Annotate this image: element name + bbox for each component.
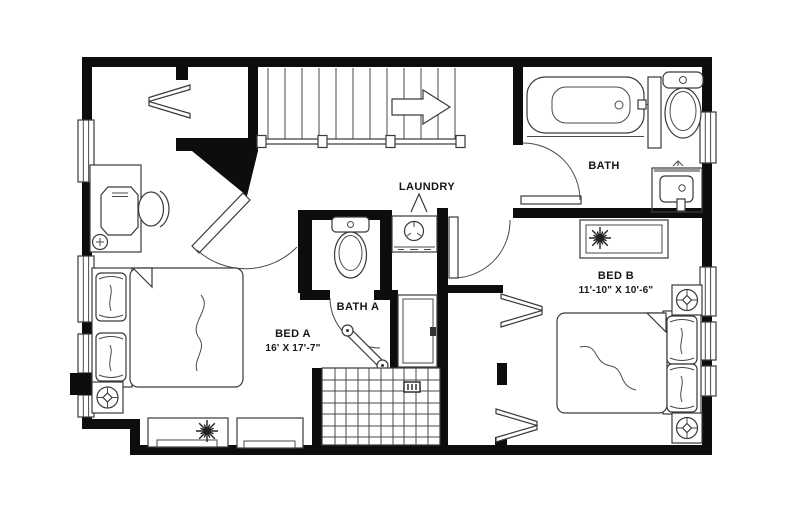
towel-bar	[673, 161, 683, 166]
plant-symbol	[589, 227, 611, 249]
lamp-symbol	[677, 290, 698, 311]
window-right-3	[700, 322, 716, 360]
lamp-symbol	[97, 387, 118, 408]
bed-b-dimensions: 11'-10" X 10'-6"	[579, 285, 654, 296]
stair-railing	[257, 136, 465, 148]
washer-dryer	[392, 216, 437, 252]
floor-plan: BED A 16' X 17'-7" LAUNDRY	[0, 0, 800, 518]
cabinet-handle	[430, 327, 436, 336]
nightstand-bed-b-top	[672, 285, 702, 315]
staircase	[257, 68, 465, 148]
bath-a-label: BATH A	[337, 301, 380, 313]
shower-drain	[404, 382, 420, 392]
bed-a-dimensions: 16' X 17'-7"	[265, 343, 320, 354]
toilet-bath	[663, 72, 703, 138]
wall-pier	[70, 373, 93, 395]
plant-symbol	[196, 420, 218, 442]
linen-cabinet	[398, 295, 437, 367]
bed-a-label: BED A	[275, 328, 311, 340]
lamp-symbol	[677, 418, 698, 439]
bathtub	[527, 77, 655, 137]
closet-doors-bed-b-2	[496, 409, 537, 442]
dresser-bed-a-2	[237, 418, 303, 448]
bath-door	[521, 143, 581, 204]
closet-doors-bed-b-1	[501, 294, 542, 327]
floor-plan-drawing: BED A 16' X 17'-7" LAUNDRY	[0, 0, 800, 518]
nightstand-bed-b-bottom	[672, 413, 702, 443]
dresser-bed-a-1	[148, 418, 228, 447]
vanity-sink	[652, 161, 702, 212]
toilet-bath-a	[332, 217, 369, 278]
tub-partition	[648, 77, 661, 148]
bed-b	[557, 311, 701, 414]
laundry-label: LAUNDRY	[399, 181, 455, 193]
window-right-1	[700, 112, 716, 163]
laundry-closet	[392, 194, 437, 252]
bed-b-label: BED B	[598, 270, 634, 282]
bed-a	[92, 268, 243, 387]
bath-label: BATH	[588, 160, 619, 172]
desk-chair	[139, 191, 170, 227]
window-right-4	[700, 366, 716, 396]
shower-pivot-door	[342, 325, 388, 371]
hall-door	[449, 217, 510, 278]
closet-rod-symbol	[149, 85, 190, 118]
nightstand-bed-a	[92, 382, 123, 413]
outlet-symbol	[93, 235, 108, 250]
dresser-bed-b	[580, 220, 668, 258]
bed-a-entry-door	[192, 193, 297, 269]
shower	[322, 368, 440, 445]
